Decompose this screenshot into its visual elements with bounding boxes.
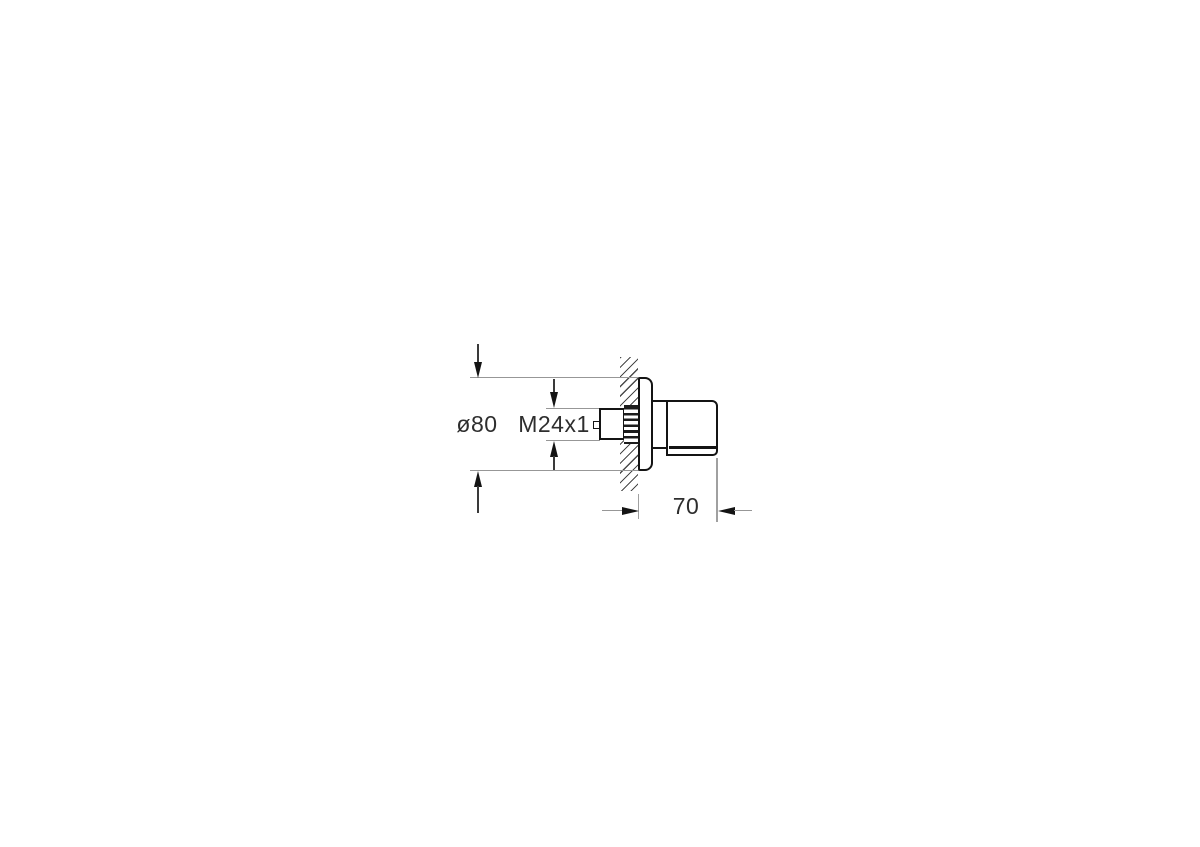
dim-diameter-extension-bottom	[470, 470, 639, 471]
valve-stem	[599, 408, 625, 440]
dim-depth-arrow-left-stem	[602, 510, 623, 511]
arrow-down-icon	[550, 392, 558, 408]
thread-ribs	[624, 405, 639, 444]
stem-notch	[593, 421, 600, 429]
dim-thread-label: M24x1	[509, 413, 599, 436]
arrow-up-icon	[550, 441, 558, 457]
arrow-right-icon	[622, 507, 639, 515]
handle-knob	[666, 400, 718, 456]
drawing-canvas: ø80 M24x1 70	[0, 0, 1200, 847]
dim-depth-arrow-right-stem	[734, 510, 752, 511]
dim-diameter-arrow-bottom-stem	[477, 486, 478, 513]
arrow-down-icon	[474, 362, 482, 378]
dim-thread-arrow-bottom-stem	[553, 456, 554, 470]
dim-depth-label: 70	[651, 495, 721, 518]
escutcheon-flange	[638, 377, 653, 471]
dim-thread-arrow-top-stem	[553, 379, 554, 393]
dim-diameter-arrow-top-stem	[477, 344, 478, 362]
handle-edge-line	[669, 446, 716, 449]
arrow-up-icon	[474, 471, 482, 487]
